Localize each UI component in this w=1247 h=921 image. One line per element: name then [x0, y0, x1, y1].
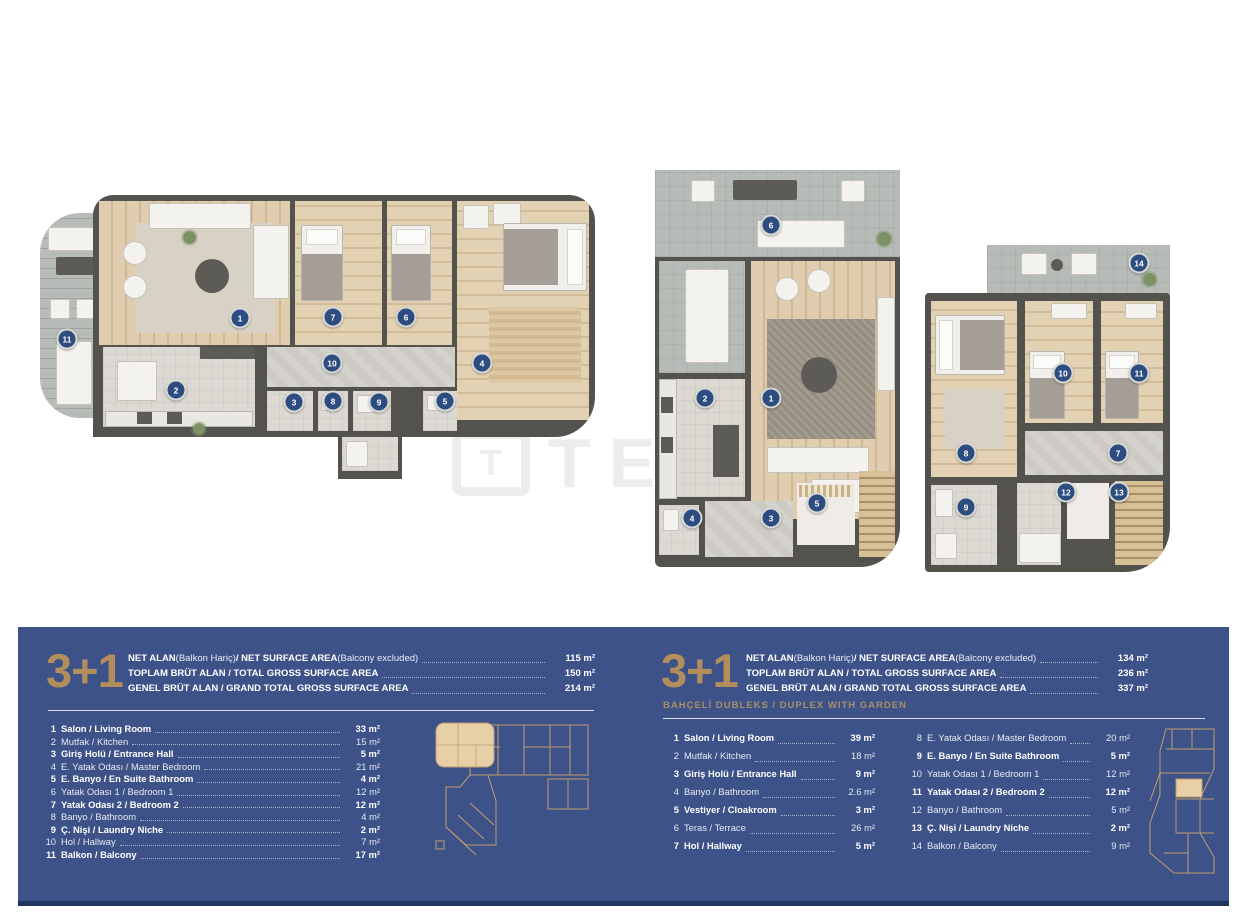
room-area-value: 12 m² — [1094, 765, 1130, 783]
leader-dots — [197, 782, 340, 783]
room-name: Banyo / Bathroom — [684, 783, 759, 801]
room-number-marker: 11 — [1129, 363, 1150, 384]
surface-summary-right: NET ALAN (Balkon Hariç) / NET SURFACE AR… — [746, 651, 1148, 697]
unit-type-label: 3+1 — [661, 647, 738, 694]
room-name: Giriş Holü / Entrance Hall — [61, 748, 174, 761]
leader-dots — [177, 795, 340, 796]
room-name: Salon / Living Room — [684, 729, 774, 747]
room-area-value: 15 m² — [344, 736, 380, 749]
room-number-marker: 6 — [761, 215, 782, 236]
room-area-value: 39 m² — [839, 729, 875, 747]
room-number: 6 — [663, 819, 679, 837]
room-area-value: 4 m² — [344, 773, 380, 786]
room-name: Hol / Hallway — [61, 836, 116, 849]
summary-value: 134 m² — [1102, 651, 1148, 666]
summary-row: NET ALAN (Balkon Hariç) / NET SURFACE AR… — [746, 651, 1148, 666]
room-row: 9E. Banyo / En Suite Bathroom5 m² — [906, 747, 1130, 765]
room-row: 14Balkon / Balcony9 m² — [906, 837, 1130, 855]
room-number-marker: 7 — [1108, 443, 1129, 464]
room-area-value: 12 m² — [344, 786, 380, 799]
leader-dots — [178, 757, 340, 758]
room-name: Ç. Nişi / Laundry Niche — [61, 824, 163, 837]
room-name: Yatak Odası 1 / Bedroom 1 — [927, 765, 1039, 783]
room-row: 8Banyo / Bathroom4 m² — [40, 811, 380, 824]
summary-value: 115 m² — [549, 651, 595, 666]
room-number: 8 — [40, 811, 56, 824]
room-row: 1Salon / Living Room33 m² — [40, 723, 380, 736]
room-row: 5E. Banyo / En Suite Bathroom4 m² — [40, 773, 380, 786]
summary-value: 214 m² — [549, 681, 595, 696]
room-number: 14 — [906, 837, 922, 855]
site-key-plan-left — [428, 717, 598, 857]
room-area-value: 12 m² — [1094, 783, 1130, 801]
room-area-value: 26 m² — [839, 819, 875, 837]
room-name: Mutfak / Kitchen — [684, 747, 751, 765]
room-number-marker: 5 — [435, 391, 456, 412]
room-row: 9Ç. Nişi / Laundry Niche2 m² — [40, 824, 380, 837]
room-list-right-col2: 8E. Yatak Odası / Master Bedroom20 m²9E.… — [906, 729, 1130, 855]
room-number-marker: 2 — [695, 388, 716, 409]
room-list-right-col1: 1Salon / Living Room39 m²2Mutfak / Kitch… — [663, 729, 875, 855]
leader-dots — [1040, 662, 1098, 663]
room-name: Balkon / Balcony — [927, 837, 997, 855]
room-area-value: 21 m² — [344, 761, 380, 774]
leader-dots — [141, 858, 340, 859]
room-number: 4 — [40, 761, 56, 774]
surface-summary-left: NET ALAN (Balkon Hariç) / NET SURFACE AR… — [128, 651, 595, 697]
summary-row: GENEL BRÜT ALAN / GRAND TOTAL GROSS SURF… — [746, 681, 1148, 696]
room-number: 9 — [40, 824, 56, 837]
summary-label: (Balkon Hariç) — [794, 651, 854, 666]
room-area-value: 18 m² — [839, 747, 875, 765]
panel-bottom-strip — [18, 901, 1229, 906]
room-name: Yatak Odası 2 / Bedroom 2 — [927, 783, 1045, 801]
room-number: 5 — [40, 773, 56, 786]
room-number-marker: 1 — [761, 388, 782, 409]
room-row: 11Yatak Odası 2 / Bedroom 212 m² — [906, 783, 1130, 801]
room-row: 11Balkon / Balcony17 m² — [40, 849, 380, 862]
room-number: 11 — [40, 849, 56, 862]
room-number: 8 — [906, 729, 922, 747]
room-row: 12Banyo / Bathroom5 m² — [906, 801, 1130, 819]
leader-dots — [1001, 851, 1090, 852]
leader-dots — [422, 662, 545, 663]
room-area-value: 17 m² — [344, 849, 380, 862]
summary-label: (Balkon Hariç) — [176, 651, 236, 666]
room-number-marker: 9 — [369, 392, 390, 413]
summary-label: TOPLAM BRÜT ALAN / TOTAL GROSS SURFACE A… — [746, 666, 996, 681]
room-row: 7Yatak Odası 2 / Bedroom 212 m² — [40, 799, 380, 812]
room-number-marker: 8 — [323, 391, 344, 412]
room-row: 6Yatak Odası 1 / Bedroom 112 m² — [40, 786, 380, 799]
room-row: 2Mutfak / Kitchen15 m² — [40, 736, 380, 749]
room-name: E. Yatak Odası / Master Bedroom — [927, 729, 1066, 747]
room-number-marker: 14 — [1129, 253, 1150, 274]
room-name: Yatak Odası 2 / Bedroom 2 — [61, 799, 179, 812]
leader-dots — [750, 833, 835, 834]
room-row: 8E. Yatak Odası / Master Bedroom20 m² — [906, 729, 1130, 747]
room-number: 12 — [906, 801, 922, 819]
room-number: 5 — [663, 801, 679, 819]
room-number: 11 — [906, 783, 922, 801]
room-name: Mutfak / Kitchen — [61, 736, 128, 749]
leader-dots — [412, 693, 545, 694]
room-area-value: 2.6 m² — [839, 783, 875, 801]
room-name: Giriş Holü / Entrance Hall — [684, 765, 797, 783]
room-number-marker: 3 — [761, 508, 782, 529]
room-name: Banyo / Bathroom — [61, 811, 136, 824]
room-area-value: 9 m² — [839, 765, 875, 783]
room-row: 5Vestiyer / Cloakroom3 m² — [663, 801, 875, 819]
room-area-value: 4 m² — [344, 811, 380, 824]
room-name: Yatak Odası 1 / Bedroom 1 — [61, 786, 173, 799]
room-number-marker: 5 — [807, 493, 828, 514]
unit-type-label: 3+1 — [46, 647, 123, 694]
room-number-marker: 7 — [323, 307, 344, 328]
room-area-value: 20 m² — [1094, 729, 1130, 747]
room-list-left: 1Salon / Living Room33 m²2Mutfak / Kitch… — [40, 723, 380, 862]
leader-dots — [167, 832, 340, 833]
room-number: 9 — [906, 747, 922, 765]
room-number-marker: 4 — [682, 508, 703, 529]
room-row: 7Hol / Hallway5 m² — [663, 837, 875, 855]
room-number: 4 — [663, 783, 679, 801]
summary-label: GENEL BRÜT ALAN / GRAND TOTAL GROSS SURF… — [746, 681, 1026, 696]
room-area-value: 3 m² — [839, 801, 875, 819]
room-name: Balkon / Balcony — [61, 849, 137, 862]
summary-value: 337 m² — [1102, 681, 1148, 696]
room-area-value: 33 m² — [344, 723, 380, 736]
room-number-marker: 3 — [284, 392, 305, 413]
summary-row: TOPLAM BRÜT ALAN / TOTAL GROSS SURFACE A… — [746, 666, 1148, 681]
room-area-value: 5 m² — [1094, 801, 1130, 819]
divider — [48, 710, 594, 711]
summary-label: / NET SURFACE AREA — [236, 651, 338, 666]
leader-dots — [183, 807, 340, 808]
summary-row: NET ALAN (Balkon Hariç) / NET SURFACE AR… — [128, 651, 595, 666]
leader-dots — [778, 743, 835, 744]
room-row: 4Banyo / Bathroom2.6 m² — [663, 783, 875, 801]
room-number: 3 — [40, 748, 56, 761]
floor-plan-duplex-lower: 621435 — [655, 170, 900, 567]
room-number: 10 — [906, 765, 922, 783]
room-name: Banyo / Bathroom — [927, 801, 1002, 819]
room-number-marker: 11 — [57, 329, 78, 350]
floor-plan-3plus1: 1112761038954 — [35, 195, 595, 481]
room-area-value: 5 m² — [344, 748, 380, 761]
room-row: 2Mutfak / Kitchen18 m² — [663, 747, 875, 765]
room-number: 1 — [663, 729, 679, 747]
room-area-value: 5 m² — [839, 837, 875, 855]
room-number-marker: 12 — [1056, 482, 1077, 503]
room-number-marker: 8 — [956, 443, 977, 464]
room-number-marker: 6 — [396, 307, 417, 328]
summary-label: TOPLAM BRÜT ALAN / TOTAL GROSS SURFACE A… — [128, 666, 378, 681]
room-number: 13 — [906, 819, 922, 837]
leader-dots — [204, 769, 340, 770]
room-name: Vestiyer / Cloakroom — [684, 801, 777, 819]
room-row: 3Giriş Holü / Entrance Hall5 m² — [40, 748, 380, 761]
room-name: Teras / Terrace — [684, 819, 746, 837]
leader-dots — [1070, 743, 1090, 744]
summary-value: 150 m² — [549, 666, 595, 681]
leader-dots — [1030, 693, 1098, 694]
leader-dots — [763, 797, 835, 798]
room-row: 6Teras / Terrace26 m² — [663, 819, 875, 837]
leader-dots — [781, 815, 835, 816]
leader-dots — [801, 779, 835, 780]
leader-dots — [120, 845, 340, 846]
room-row: 10Yatak Odası 1 / Bedroom 112 m² — [906, 765, 1130, 783]
summary-label: NET ALAN — [746, 651, 794, 666]
room-area-value: 2 m² — [344, 824, 380, 837]
leader-dots — [1000, 677, 1098, 678]
floor-plan-duplex-upper: 1410118791213 — [925, 245, 1170, 572]
room-row: 4E. Yatak Odası / Master Bedroom21 m² — [40, 761, 380, 774]
room-area-value: 9 m² — [1094, 837, 1130, 855]
room-number: 10 — [40, 836, 56, 849]
room-name: Ç. Nişi / Laundry Niche — [927, 819, 1029, 837]
room-number: 1 — [40, 723, 56, 736]
room-area-value: 12 m² — [344, 799, 380, 812]
room-number: 2 — [40, 736, 56, 749]
leader-dots — [140, 820, 340, 821]
room-number: 7 — [40, 799, 56, 812]
room-area-value: 2 m² — [1094, 819, 1130, 837]
leader-dots — [746, 851, 835, 852]
summary-label: GENEL BRÜT ALAN / GRAND TOTAL GROSS SURF… — [128, 681, 408, 696]
divider — [663, 718, 1205, 719]
leader-dots — [382, 677, 545, 678]
room-area-value: 5 m² — [1094, 747, 1130, 765]
room-name: Salon / Living Room — [61, 723, 151, 736]
leader-dots — [1033, 833, 1090, 834]
room-number-marker: 4 — [472, 353, 493, 374]
room-row: 10Hol / Hallway7 m² — [40, 836, 380, 849]
room-number: 2 — [663, 747, 679, 765]
summary-label: NET ALAN — [128, 651, 176, 666]
summary-row: TOPLAM BRÜT ALAN / TOTAL GROSS SURFACE A… — [128, 666, 595, 681]
leader-dots — [755, 761, 835, 762]
site-key-plan-right — [1136, 723, 1236, 879]
room-name: E. Banyo / En Suite Bathroom — [61, 773, 193, 786]
info-panel: 3+1 NET ALAN (Balkon Hariç) / NET SURFAC… — [18, 627, 1229, 906]
room-name: E. Yatak Odası / Master Bedroom — [61, 761, 200, 774]
leader-dots — [1049, 797, 1090, 798]
room-name: E. Banyo / En Suite Bathroom — [927, 747, 1059, 765]
room-number: 3 — [663, 765, 679, 783]
room-number: 6 — [40, 786, 56, 799]
summary-value: 236 m² — [1102, 666, 1148, 681]
room-number-marker: 2 — [166, 380, 187, 401]
room-name: Hol / Hallway — [684, 837, 742, 855]
brochure-page: { "colors": { "panel_bg": "#3d5288", "ac… — [0, 0, 1247, 921]
duplex-subtitle: BAHÇELİ DUBLEKS / DUPLEX WITH GARDEN — [663, 700, 907, 711]
leader-dots — [155, 732, 340, 733]
room-area-value: 7 m² — [344, 836, 380, 849]
plan-c-markers: 1410118791213 — [925, 245, 1170, 572]
room-row: 3Giriş Holü / Entrance Hall9 m² — [663, 765, 875, 783]
summary-row: GENEL BRÜT ALAN / GRAND TOTAL GROSS SURF… — [128, 681, 595, 696]
room-number-marker: 13 — [1109, 482, 1130, 503]
room-number-marker: 10 — [322, 353, 343, 374]
room-number: 7 — [663, 837, 679, 855]
room-row: 1Salon / Living Room39 m² — [663, 729, 875, 747]
plan-b-markers: 621435 — [655, 170, 900, 567]
summary-label: / NET SURFACE AREA — [854, 651, 956, 666]
room-number-marker: 10 — [1053, 363, 1074, 384]
leader-dots — [132, 744, 340, 745]
summary-label: (Balcony excluded) — [955, 651, 1036, 666]
plan-a-markers: 1112761038954 — [35, 195, 595, 481]
leader-dots — [1043, 779, 1090, 780]
room-number-marker: 9 — [956, 497, 977, 518]
leader-dots — [1063, 761, 1090, 762]
leader-dots — [1006, 815, 1090, 816]
room-row: 13Ç. Nişi / Laundry Niche2 m² — [906, 819, 1130, 837]
room-number-marker: 1 — [230, 308, 251, 329]
summary-label: (Balcony excluded) — [337, 651, 418, 666]
